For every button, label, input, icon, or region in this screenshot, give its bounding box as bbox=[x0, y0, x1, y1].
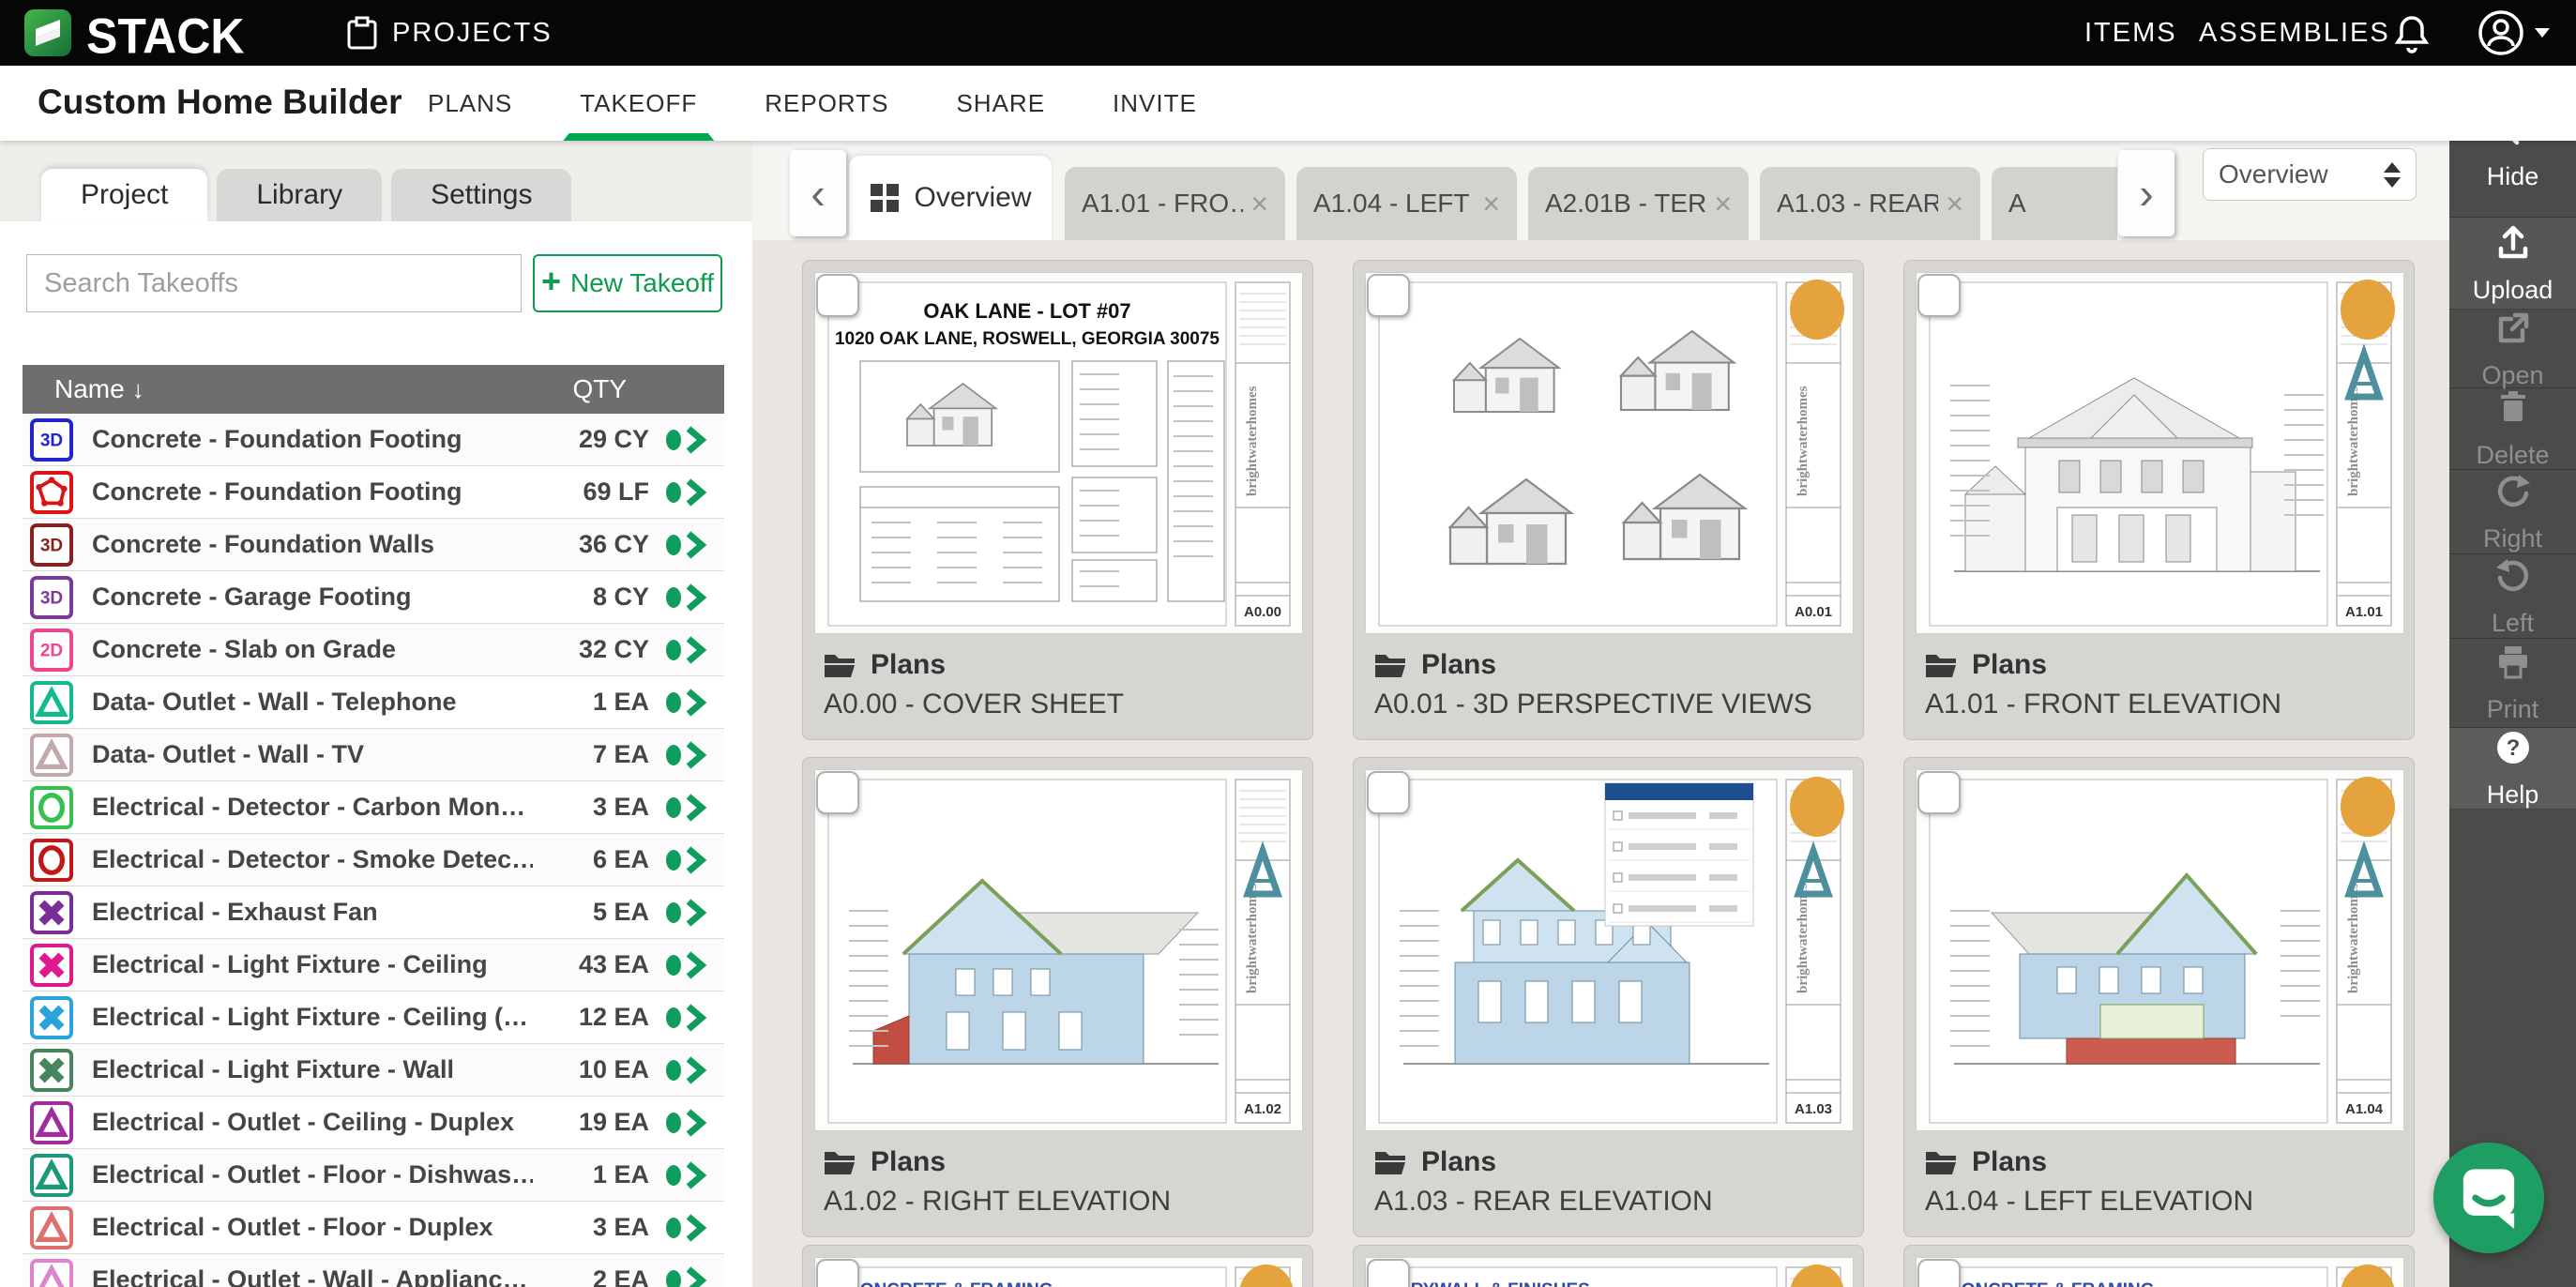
takeoff-row[interactable]: Data- Outlet - Wall - TV7 EA bbox=[23, 729, 724, 781]
project-tab-reports[interactable]: REPORTS bbox=[731, 66, 922, 141]
plan-folder-label: Plans bbox=[1421, 1146, 1496, 1178]
close-tab-icon[interactable]: × bbox=[1250, 187, 1268, 221]
takeoff-type-icon bbox=[30, 944, 73, 987]
project-tabs: PLANSTAKEOFFREPORTSSHAREINVITE bbox=[394, 66, 1231, 141]
search-input[interactable] bbox=[26, 254, 522, 312]
takeoff-name: Electrical - Light Fixture - Ceiling (… bbox=[92, 1003, 528, 1032]
takeoff-row[interactable]: Electrical - Detector - Smoke Detec…6 EA bbox=[23, 834, 724, 886]
go-to-takeoff-icon[interactable] bbox=[649, 1055, 724, 1085]
account-menu-button[interactable] bbox=[2477, 8, 2552, 57]
folder-icon bbox=[1374, 652, 1406, 678]
tabs-scroll-left-button[interactable]: ‹ bbox=[790, 150, 846, 236]
rotate-right-icon bbox=[2493, 471, 2534, 517]
brand-name: STACK bbox=[86, 8, 245, 65]
takeoff-type-icon: 3D bbox=[30, 523, 73, 567]
svg-text:brightwaterhomes: brightwaterhomes bbox=[1796, 386, 1811, 496]
svg-text:3D: 3D bbox=[40, 588, 63, 608]
select-plan-checkbox[interactable] bbox=[1917, 1259, 1961, 1287]
plan-folder: Plans bbox=[824, 1146, 946, 1178]
takeoff-status-badge bbox=[1790, 777, 1844, 837]
project-tab-label: REPORTS bbox=[765, 89, 888, 118]
upload-icon bbox=[2493, 222, 2534, 268]
takeoff-qty: 69 LF bbox=[537, 477, 649, 507]
select-arrows-icon bbox=[2384, 162, 2401, 188]
plan-title: A1.02 - RIGHT ELEVATION bbox=[824, 1186, 1171, 1218]
nav-assemblies[interactable]: ASSEMBLIES bbox=[2199, 0, 2390, 66]
plan-thumbnail[interactable]: brightwaterhomesA0.01 bbox=[1365, 272, 1854, 634]
plan-title: A1.01 - FRONT ELEVATION bbox=[1925, 689, 2281, 720]
sheet-tab-label: A1.03 - REAR… bbox=[1777, 189, 1938, 219]
takeoff-row[interactable]: 2DConcrete - Slab on Grade32 CY bbox=[23, 624, 724, 676]
sidebar-button-label: Delete bbox=[2476, 441, 2549, 470]
name-column-header[interactable]: Name bbox=[54, 374, 125, 404]
takeoff-qty: 10 EA bbox=[537, 1055, 649, 1084]
go-to-takeoff-icon[interactable] bbox=[649, 583, 724, 613]
takeoff-row[interactable]: 3DConcrete - Foundation Walls36 CY bbox=[23, 519, 724, 571]
project-tab-share[interactable]: SHARE bbox=[922, 66, 1079, 141]
svg-text:CONCRETE & FRAMING: CONCRETE & FRAMING bbox=[847, 1280, 1053, 1287]
plan-card[interactable]: CONCRETE & FRAMING bbox=[802, 1245, 1313, 1287]
takeoff-row[interactable]: Electrical - Detector - Carbon Mon…3 EA bbox=[23, 781, 724, 834]
sheet-tab[interactable]: A1.04 - LEFT …× bbox=[1296, 167, 1517, 240]
nav-assemblies-label: ASSEMBLIES bbox=[2199, 18, 2390, 49]
plan-thumbnail[interactable]: brightwaterhomesA1.03 bbox=[1365, 769, 1854, 1131]
takeoff-row[interactable]: Electrical - Outlet - Floor - Dishwas…1 … bbox=[23, 1149, 724, 1202]
notifications-button[interactable] bbox=[2390, 12, 2433, 55]
project-tab-takeoff[interactable]: TAKEOFF bbox=[546, 66, 731, 141]
takeoff-name: Electrical - Detector - Smoke Detec… bbox=[92, 845, 533, 874]
panel-tab-settings[interactable]: Settings bbox=[391, 169, 571, 221]
takeoff-name: Concrete - Foundation Footing bbox=[92, 477, 462, 507]
takeoff-qty: 3 EA bbox=[537, 1213, 649, 1242]
svg-text:CONCRETE & FRAMING: CONCRETE & FRAMING bbox=[1948, 1280, 2155, 1287]
svg-text:A0.00: A0.00 bbox=[1244, 604, 1281, 620]
takeoff-name: Electrical - Exhaust Fan bbox=[92, 898, 378, 927]
project-tab-label: TAKEOFF bbox=[580, 89, 697, 118]
svg-text:OAK LANE - LOT #07: OAK LANE - LOT #07 bbox=[923, 299, 1130, 323]
delete-button: Delete bbox=[2449, 388, 2576, 470]
plan-thumbnail[interactable]: brightwaterhomesA1.04 bbox=[1916, 769, 2404, 1131]
takeoff-status-badge bbox=[2341, 280, 2395, 340]
takeoff-qty: 5 EA bbox=[537, 898, 649, 927]
svg-text:?: ? bbox=[2506, 735, 2520, 761]
svg-text:A1.01: A1.01 bbox=[2345, 604, 2383, 620]
takeoff-qty: 32 CY bbox=[537, 635, 649, 664]
takeoff-row[interactable]: Concrete - Foundation Footing69 LF bbox=[23, 466, 724, 519]
takeoff-status-badge bbox=[1790, 280, 1844, 340]
plan-thumbnail[interactable]: brightwaterhomesA1.02 bbox=[814, 769, 1303, 1131]
takeoff-type-icon bbox=[30, 1206, 73, 1249]
takeoff-qty: 29 CY bbox=[537, 425, 649, 454]
takeoff-rows: 3DConcrete - Foundation Footing29 CYConc… bbox=[23, 414, 724, 1287]
svg-text:brightwaterhomes: brightwaterhomes bbox=[1245, 883, 1260, 993]
takeoff-row[interactable]: Electrical - Outlet - Floor - Duplex3 EA bbox=[23, 1202, 724, 1254]
takeoff-row[interactable]: Electrical - Light Fixture - Ceiling43 E… bbox=[23, 939, 724, 992]
folder-icon bbox=[1925, 652, 1957, 678]
takeoff-name: Electrical - Light Fixture - Ceiling bbox=[92, 950, 488, 979]
nav-items-label: ITEMS bbox=[2084, 18, 2177, 49]
plan-card[interactable]: DRYWALL & FINISHES bbox=[1353, 1245, 1864, 1287]
sheet-tab-label: A bbox=[2008, 189, 2117, 219]
takeoff-type-icon: 3D bbox=[30, 418, 73, 462]
plan-folder-label: Plans bbox=[1421, 649, 1496, 681]
nav-items[interactable]: ITEMS bbox=[2084, 0, 2177, 66]
clipboard-icon bbox=[345, 14, 379, 52]
takeoff-name: Concrete - Foundation Walls bbox=[92, 530, 434, 559]
stack-logo-icon[interactable] bbox=[24, 9, 71, 56]
nav-projects[interactable]: PROJECTS bbox=[345, 0, 553, 66]
plan-card[interactable]: brightwaterhomesA0.01PlansA0.01 - 3D PER… bbox=[1353, 260, 1864, 740]
svg-text:A1.02: A1.02 bbox=[1244, 1101, 1281, 1117]
tab-overview[interactable]: Overview bbox=[849, 156, 1052, 240]
view-mode-value: Overview bbox=[2219, 159, 2328, 189]
bell-icon bbox=[2390, 12, 2433, 55]
plan-folder-label: Plans bbox=[871, 649, 946, 681]
chat-launcher-button[interactable] bbox=[2433, 1143, 2544, 1253]
chat-bubble-icon bbox=[2433, 1143, 2544, 1253]
svg-text:A1.04: A1.04 bbox=[2345, 1101, 2384, 1117]
takeoff-name: Electrical - Outlet - Floor - Dishwas… bbox=[92, 1160, 533, 1189]
plan-folder: Plans bbox=[1925, 649, 2047, 681]
plan-title: A1.04 - LEFT ELEVATION bbox=[1925, 1186, 2253, 1218]
sidebar-button-label: Upload bbox=[2473, 276, 2553, 305]
svg-text:1020 OAK LANE, ROSWELL, GEORGI: 1020 OAK LANE, ROSWELL, GEORGIA 30075 bbox=[835, 329, 1220, 349]
top-app-bar: STACK PROJECTS ITEMS ASSEMBLIES bbox=[0, 0, 2576, 66]
takeoff-status-badge bbox=[2341, 777, 2395, 837]
folder-icon bbox=[824, 1149, 856, 1175]
plan-card[interactable]: OAK LANE - LOT #071020 OAK LANE, ROSWELL… bbox=[802, 260, 1313, 740]
close-tab-icon[interactable]: × bbox=[1714, 187, 1732, 221]
new-takeoff-label: New Takeoff bbox=[570, 268, 714, 298]
plan-card[interactable]: brightwaterhomesA1.02PlansA1.02 - RIGHT … bbox=[802, 757, 1313, 1237]
avatar-icon bbox=[2477, 8, 2525, 57]
project-tab-label: SHARE bbox=[956, 89, 1045, 118]
takeoff-qty: 2 EA bbox=[537, 1265, 649, 1287]
svg-text:DRYWALL & FINISHES: DRYWALL & FINISHES bbox=[1398, 1280, 1590, 1287]
takeoff-qty: 19 EA bbox=[537, 1108, 649, 1137]
takeoff-type-icon bbox=[30, 1101, 73, 1144]
help-icon: ? bbox=[2493, 727, 2534, 773]
trash-icon bbox=[2493, 387, 2534, 433]
takeoff-row[interactable]: Electrical - Outlet - Ceiling - Duplex19… bbox=[23, 1097, 724, 1149]
svg-text:A0.01: A0.01 bbox=[1795, 604, 1832, 620]
plan-title: A1.03 - REAR ELEVATION bbox=[1374, 1186, 1713, 1218]
svg-text:brightwaterhomes: brightwaterhomes bbox=[2346, 883, 2361, 993]
plan-thumbnail[interactable]: brightwaterhomesA1.01 bbox=[1916, 272, 2404, 634]
view-mode-dropdown[interactable]: Overview bbox=[2203, 148, 2417, 201]
takeoff-name: Concrete - Garage Footing bbox=[92, 583, 412, 612]
project-header: Custom Home Builder PLANSTAKEOFFREPORTSS… bbox=[0, 66, 2576, 141]
sheet-tab[interactable]: A1.03 - REAR…× bbox=[1760, 167, 1980, 240]
chevron-right-icon: › bbox=[2139, 168, 2153, 219]
sheet-tab[interactable]: A1.01 - FRO…× bbox=[1065, 167, 1285, 240]
project-tab-invite[interactable]: INVITE bbox=[1079, 66, 1231, 141]
takeoff-name: Concrete - Foundation Footing bbox=[92, 425, 462, 454]
takeoff-name: Electrical - Outlet - Floor - Duplex bbox=[92, 1213, 493, 1242]
sheet-tab-label: A1.01 - FRO… bbox=[1082, 189, 1243, 219]
open-button: Open bbox=[2449, 310, 2576, 388]
takeoff-row[interactable]: Electrical - Outlet - Wall - Applianc…2 … bbox=[23, 1254, 724, 1287]
go-to-takeoff-icon[interactable] bbox=[649, 1265, 724, 1287]
plan-folder-label: Plans bbox=[1972, 649, 2047, 681]
takeoff-name: Electrical - Detector - Carbon Mon… bbox=[92, 793, 525, 822]
takeoff-type-icon bbox=[30, 471, 73, 514]
left-panel-tabs: ProjectLibrarySettings bbox=[41, 169, 571, 221]
sheet-tab-label: A1.04 - LEFT … bbox=[1313, 189, 1475, 219]
plan-thumbnail[interactable]: CONCRETE & FRAMING bbox=[1916, 1257, 2404, 1287]
select-plan-checkbox[interactable] bbox=[816, 1259, 859, 1287]
tab-overview-label: Overview bbox=[914, 182, 1031, 214]
plan-folder: Plans bbox=[1925, 1146, 2047, 1178]
svg-text:brightwaterhomes: brightwaterhomes bbox=[2346, 386, 2361, 496]
takeoff-type-icon bbox=[30, 786, 73, 829]
plan-folder: Plans bbox=[1374, 1146, 1496, 1178]
select-plan-checkbox[interactable] bbox=[816, 274, 859, 317]
plan-card[interactable]: brightwaterhomesA1.04PlansA1.04 - LEFT E… bbox=[1903, 757, 2415, 1237]
sheet-overview-grid: OAK LANE - LOT #071020 OAK LANE, ROSWELL… bbox=[752, 240, 2449, 1287]
takeoff-table-header: Name ↓ QTY bbox=[23, 365, 724, 414]
rotate-left-icon bbox=[2493, 555, 2534, 601]
takeoff-type-icon bbox=[30, 1049, 73, 1092]
takeoff-qty: 1 EA bbox=[537, 688, 649, 717]
sheet-tab[interactable]: A bbox=[1992, 167, 2117, 240]
takeoff-qty: 3 EA bbox=[537, 793, 649, 822]
folder-icon bbox=[1374, 1149, 1406, 1175]
takeoff-row[interactable]: Electrical - Light Fixture - Ceiling (…1… bbox=[23, 992, 724, 1044]
close-tab-icon[interactable]: × bbox=[1482, 187, 1500, 221]
takeoff-row[interactable]: 3DConcrete - Foundation Footing29 CY bbox=[23, 414, 724, 466]
go-to-takeoff-icon[interactable] bbox=[649, 740, 724, 770]
takeoff-name: Electrical - Outlet - Wall - Applianc… bbox=[92, 1265, 528, 1287]
select-plan-checkbox[interactable] bbox=[1367, 274, 1410, 317]
takeoff-qty: 12 EA bbox=[537, 1003, 649, 1032]
sidebar-button-label: Print bbox=[2487, 695, 2539, 724]
takeoff-qty: 7 EA bbox=[537, 740, 649, 769]
chevron-down-icon bbox=[2533, 26, 2552, 39]
plan-thumbnail[interactable]: DRYWALL & FINISHES bbox=[1365, 1257, 1854, 1287]
active-tab-underline bbox=[563, 133, 714, 141]
go-to-takeoff-icon[interactable] bbox=[649, 793, 724, 823]
folder-icon bbox=[1925, 1149, 1957, 1175]
select-plan-checkbox[interactable] bbox=[816, 771, 859, 814]
select-plan-checkbox[interactable] bbox=[1917, 771, 1961, 814]
takeoff-table: Name ↓ QTY 3DConcrete - Foundation Footi… bbox=[23, 365, 724, 1287]
go-to-takeoff-icon[interactable] bbox=[649, 898, 724, 928]
plan-card[interactable]: brightwaterhomesA1.01PlansA1.01 - FRONT … bbox=[1903, 260, 2415, 740]
takeoff-name: Data- Outlet - Wall - TV bbox=[92, 740, 364, 769]
printer-icon bbox=[2493, 642, 2534, 688]
left-button: Left bbox=[2449, 554, 2576, 639]
takeoff-type-icon bbox=[30, 681, 73, 724]
new-takeoff-button[interactable]: + New Takeoff bbox=[533, 254, 722, 312]
panel-tab-library[interactable]: Library bbox=[217, 169, 382, 221]
close-tab-icon[interactable]: × bbox=[1946, 187, 1963, 221]
sidebar-button-label: Right bbox=[2483, 524, 2542, 553]
grid-icon bbox=[869, 182, 901, 214]
go-to-takeoff-icon[interactable] bbox=[649, 635, 724, 665]
tools-sidebar: HideUploadOpenDeleteRightLeftPrint?Help bbox=[2449, 83, 2576, 1287]
takeoff-type-icon bbox=[30, 839, 73, 882]
open-sheet-tabs: A1.01 - FRO…×A1.04 - LEFT …×A2.01B - TER… bbox=[1065, 141, 2117, 240]
svg-text:2D: 2D bbox=[40, 641, 63, 660]
select-plan-checkbox[interactable] bbox=[1367, 771, 1410, 814]
sidebar-button-label: Help bbox=[2487, 780, 2539, 810]
project-tab-label: PLANS bbox=[428, 89, 512, 118]
qty-column-header[interactable]: QTY bbox=[572, 374, 627, 404]
plan-folder-label: Plans bbox=[1972, 1146, 2047, 1178]
go-to-takeoff-icon[interactable] bbox=[649, 688, 724, 718]
project-tab-plans[interactable]: PLANS bbox=[394, 66, 546, 141]
takeoff-row[interactable]: Data- Outlet - Wall - Telephone1 EA bbox=[23, 676, 724, 729]
open-icon bbox=[2493, 308, 2534, 354]
sort-descending-icon: ↓ bbox=[132, 375, 144, 404]
stack-logo-glyph bbox=[24, 9, 71, 56]
sidebar-button-label: Open bbox=[2481, 361, 2543, 390]
upload-button[interactable]: Upload bbox=[2449, 218, 2576, 310]
plan-title: A0.01 - 3D PERSPECTIVE VIEWS bbox=[1374, 689, 1812, 720]
takeoff-type-icon: 3D bbox=[30, 576, 73, 619]
go-to-takeoff-icon[interactable] bbox=[649, 845, 724, 875]
plan-card[interactable]: CONCRETE & FRAMING bbox=[1903, 1245, 2415, 1287]
go-to-takeoff-icon[interactable] bbox=[649, 477, 724, 507]
plan-folder-label: Plans bbox=[871, 1146, 946, 1178]
takeoff-qty: 36 CY bbox=[537, 530, 649, 559]
takeoff-row[interactable]: Electrical - Exhaust Fan5 EA bbox=[23, 886, 724, 939]
takeoff-type-icon: 2D bbox=[30, 628, 73, 672]
nav-projects-label: PROJECTS bbox=[392, 18, 553, 49]
takeoff-name: Data- Outlet - Wall - Telephone bbox=[92, 688, 457, 717]
sheet-tab[interactable]: A2.01B - TER…× bbox=[1528, 167, 1749, 240]
takeoff-qty: 1 EA bbox=[537, 1160, 649, 1189]
go-to-takeoff-icon[interactable] bbox=[649, 1213, 724, 1243]
sidebar-button-label: Hide bbox=[2487, 162, 2539, 191]
takeoff-type-icon bbox=[30, 734, 73, 777]
folder-icon bbox=[824, 652, 856, 678]
takeoff-type-icon bbox=[30, 1259, 73, 1287]
takeoff-qty: 6 EA bbox=[537, 845, 649, 874]
go-to-takeoff-icon[interactable] bbox=[649, 530, 724, 560]
go-to-takeoff-icon[interactable] bbox=[649, 1160, 724, 1190]
plan-title: A0.00 - COVER SHEET bbox=[824, 689, 1124, 720]
go-to-takeoff-icon[interactable] bbox=[649, 1108, 724, 1138]
tabs-scroll-right-button[interactable]: › bbox=[2118, 150, 2174, 236]
plan-folder: Plans bbox=[1374, 649, 1496, 681]
sheet-tab-label: A2.01B - TER… bbox=[1545, 189, 1706, 219]
go-to-takeoff-icon[interactable] bbox=[649, 1003, 724, 1033]
svg-text:3D: 3D bbox=[40, 536, 63, 555]
takeoff-row[interactable]: 3DConcrete - Garage Footing8 CY bbox=[23, 571, 724, 624]
chevron-left-icon: ‹ bbox=[811, 168, 825, 219]
plan-thumbnail[interactable]: CONCRETE & FRAMING bbox=[814, 1257, 1303, 1287]
select-plan-checkbox[interactable] bbox=[1367, 1259, 1410, 1287]
svg-text:3D: 3D bbox=[40, 431, 63, 450]
svg-text:brightwaterhomes: brightwaterhomes bbox=[1796, 883, 1811, 993]
takeoff-qty: 43 EA bbox=[537, 950, 649, 979]
right-button: Right bbox=[2449, 470, 2576, 554]
svg-text:A1.03: A1.03 bbox=[1795, 1101, 1832, 1117]
plan-card[interactable]: brightwaterhomesA1.03PlansA1.03 - REAR E… bbox=[1353, 757, 1864, 1237]
takeoff-name: Electrical - Light Fixture - Wall bbox=[92, 1055, 454, 1084]
print-button: Print bbox=[2449, 639, 2576, 728]
takeoff-name: Electrical - Outlet - Ceiling - Duplex bbox=[92, 1108, 514, 1137]
takeoff-type-icon bbox=[30, 1154, 73, 1197]
takeoff-qty: 8 CY bbox=[537, 583, 649, 612]
go-to-takeoff-icon[interactable] bbox=[649, 425, 724, 455]
panel-tab-project[interactable]: Project bbox=[41, 169, 207, 221]
takeoff-row[interactable]: Electrical - Light Fixture - Wall10 EA bbox=[23, 1044, 724, 1097]
sidebar-button-label: Left bbox=[2492, 609, 2534, 638]
takeoff-type-icon bbox=[30, 996, 73, 1039]
takeoff-type-icon bbox=[30, 891, 73, 934]
svg-text:brightwaterhomes: brightwaterhomes bbox=[1245, 386, 1260, 496]
project-tab-label: INVITE bbox=[1113, 89, 1197, 118]
select-plan-checkbox[interactable] bbox=[1917, 274, 1961, 317]
plan-thumbnail[interactable]: OAK LANE - LOT #071020 OAK LANE, ROSWELL… bbox=[814, 272, 1303, 634]
help-button[interactable]: ?Help bbox=[2449, 728, 2576, 810]
project-title: Custom Home Builder bbox=[38, 83, 402, 122]
go-to-takeoff-icon[interactable] bbox=[649, 950, 724, 980]
plus-icon: + bbox=[541, 262, 561, 301]
takeoff-name: Concrete - Slab on Grade bbox=[92, 635, 396, 664]
plan-folder: Plans bbox=[824, 649, 946, 681]
